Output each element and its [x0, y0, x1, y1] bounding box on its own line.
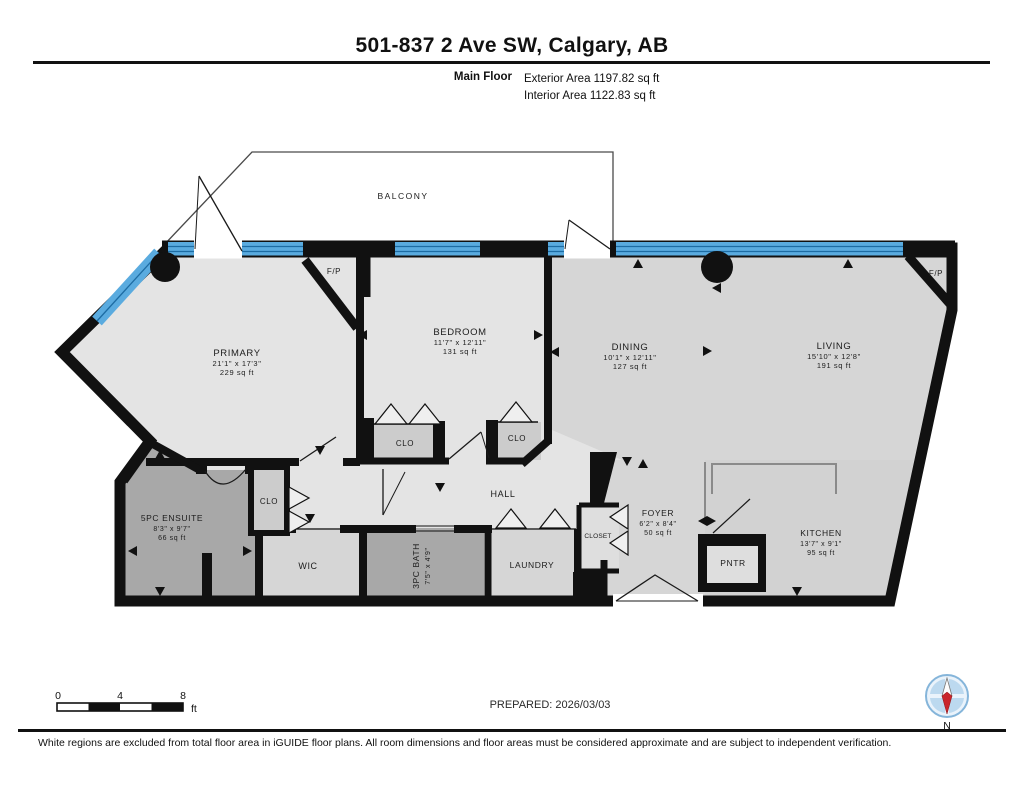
room-label-primary: PRIMARY [213, 348, 260, 359]
room-dims-living: 15'10" x 12'8" [807, 352, 861, 361]
scale-unit: ft [191, 703, 197, 715]
room-dims-primary: 21'1" x 17'3" [213, 359, 262, 368]
room-label-clo3: CLO [260, 497, 278, 506]
room-label-closet: CLOSET [584, 533, 611, 540]
room-area-foyer: 50 sq ft [644, 530, 672, 537]
fp-label-living: F/P [929, 269, 943, 278]
room-dims-kitchen: 13'7" x 9'1" [800, 541, 842, 548]
balcony-label: BALCONY [377, 191, 428, 201]
room-area-primary: 229 sq ft [220, 368, 254, 377]
room-label-ensuite: 5PC ENSUITE [141, 513, 203, 523]
room-label-living: LIVING [817, 341, 852, 352]
room-label-pantry: PNTR [720, 558, 746, 568]
room-label-clo2: CLO [508, 434, 526, 443]
foyer-floor [604, 460, 705, 598]
room-label-kitchen: KITCHEN [800, 528, 842, 538]
room-label-bedroom: BEDROOM [433, 327, 486, 338]
fp-label-primary: F/P [327, 267, 341, 276]
scale-bar: 0 4 8 ft [55, 690, 197, 715]
scale-tick-8: 8 [180, 690, 186, 702]
room-area-living: 191 sq ft [817, 361, 851, 370]
room-dims-foyer: 6'2" x 8'4" [639, 521, 676, 528]
scale-tick-4: 4 [117, 690, 123, 702]
room-dims-bedroom: 11'7" x 12'11" [434, 338, 487, 347]
room-label-bath: 3PC BATH [411, 543, 421, 589]
prepared-date: PREPARED: 2026/03/03 [490, 699, 611, 711]
room-label-wic: WIC [298, 561, 317, 571]
disclaimer-text: White regions are excluded from total fl… [38, 737, 1004, 749]
room-area-bedroom: 131 sq ft [443, 347, 477, 356]
room-dims-dining: 10'1" x 12'11" [603, 353, 656, 362]
scale-tick-0: 0 [55, 690, 61, 702]
room-area-ensuite: 66 sq ft [158, 535, 186, 542]
column [701, 251, 733, 283]
room-label-foyer: FOYER [642, 508, 674, 518]
room-area-kitchen: 95 sq ft [807, 550, 835, 557]
room-dims-ensuite: 8'3" x 9'7" [153, 526, 190, 533]
unit-floor [62, 248, 952, 601]
floor-plan-svg: BALCONY F/P F/P PRIMARY 21'1" x 17'3" 22… [0, 0, 1024, 791]
floorplan-page: 501-837 2 Ave SW, Calgary, AB Main Floor… [0, 0, 1024, 791]
room-label-hall: HALL [491, 489, 516, 499]
room-label-laundry: LAUNDRY [510, 560, 555, 570]
room-label-clo1: CLO [396, 439, 414, 448]
column [150, 252, 180, 282]
room-dims-bath: 7'5" x 4'9" [425, 547, 432, 584]
room-area-dining: 127 sq ft [613, 362, 647, 371]
footer-divider [18, 729, 1006, 732]
room-label-dining: DINING [612, 342, 649, 353]
compass-icon: N [926, 675, 968, 732]
